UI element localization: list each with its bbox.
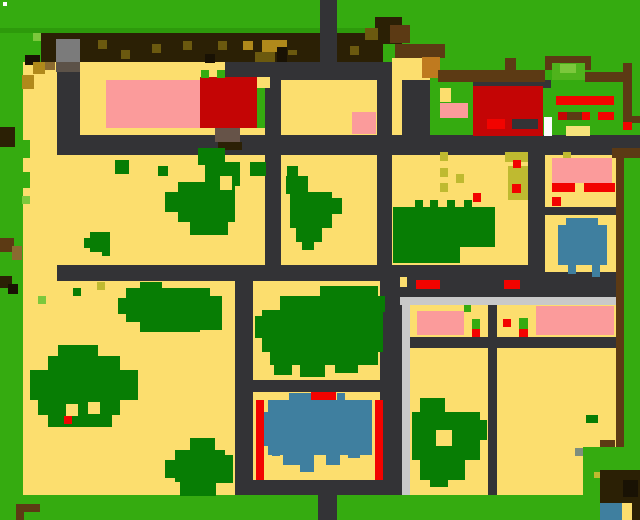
stone-block-base xyxy=(56,62,80,72)
tree xyxy=(30,370,138,400)
gold-speckle xyxy=(152,44,161,53)
green-dot xyxy=(73,288,81,296)
green-dot xyxy=(464,305,471,312)
olive-dot xyxy=(440,152,448,161)
building-red-bar xyxy=(584,183,615,192)
field-notch xyxy=(88,402,100,414)
market-item xyxy=(558,112,567,120)
field-corner xyxy=(622,503,632,520)
tree xyxy=(196,322,222,330)
green-dot xyxy=(217,70,225,78)
building-red-bar xyxy=(552,183,575,192)
lime-pixel xyxy=(33,33,41,41)
tree xyxy=(274,365,292,375)
road-marking-red xyxy=(504,280,520,289)
tree xyxy=(255,316,263,338)
game-map[interactable] xyxy=(0,0,640,520)
red-dot xyxy=(512,184,521,193)
tree xyxy=(126,288,210,322)
tree xyxy=(470,420,487,440)
water-corner xyxy=(600,503,622,520)
tree xyxy=(165,460,177,478)
pond-water xyxy=(337,393,345,401)
pond-water xyxy=(326,455,340,465)
olive-dot xyxy=(456,174,464,183)
fence-corner-southwest xyxy=(16,504,40,512)
building-pink-east xyxy=(552,158,612,183)
lime-pixel xyxy=(22,196,30,204)
dark-speckle xyxy=(277,47,287,63)
pond-water xyxy=(268,400,372,455)
tree xyxy=(430,478,448,487)
dirt-edge-corner xyxy=(632,497,640,520)
road-vertical-west xyxy=(57,72,80,138)
grass-bump xyxy=(22,140,30,158)
fence-post xyxy=(623,63,632,117)
fence-post xyxy=(505,58,516,70)
gold-speckle xyxy=(243,41,253,50)
tree xyxy=(118,298,126,314)
road-main-street xyxy=(57,135,640,155)
tree xyxy=(393,207,495,247)
pond-east-water xyxy=(566,218,598,228)
green-dot xyxy=(586,415,598,423)
dark-speckle xyxy=(205,54,215,63)
green-dot xyxy=(201,70,209,78)
tree xyxy=(302,240,314,250)
lime-pixel xyxy=(38,296,46,304)
red-dot xyxy=(503,319,511,327)
pond-fence-red xyxy=(375,400,383,480)
pond-water xyxy=(264,412,272,446)
tree xyxy=(190,220,228,235)
grass-bump xyxy=(22,172,30,188)
building-door-white xyxy=(544,117,552,136)
pond-water xyxy=(283,455,301,465)
gold-speckle xyxy=(288,50,297,55)
tree xyxy=(420,460,465,480)
sidewalk-vertical xyxy=(402,305,410,495)
road-row xyxy=(410,337,617,348)
field-pixel xyxy=(400,277,407,287)
road-vertical-pond-west xyxy=(235,281,253,495)
gold-speckle xyxy=(98,40,107,49)
fence-piece xyxy=(600,440,615,447)
building-window-dark xyxy=(512,119,538,129)
dirt-cluster xyxy=(12,246,22,260)
road-middle-fareast xyxy=(545,272,617,297)
tree xyxy=(335,365,358,373)
green-dot xyxy=(115,160,129,174)
olive-dot xyxy=(563,152,571,158)
pond-east-water xyxy=(568,263,576,274)
dirt-cluster xyxy=(8,284,18,294)
road-marking-red xyxy=(416,280,440,289)
pond-water xyxy=(289,393,311,401)
roadside-block xyxy=(215,128,240,142)
building-green-strip xyxy=(257,88,265,128)
market-stall-yellow xyxy=(566,126,590,136)
fence-piece xyxy=(395,44,445,58)
sidewalk-horizontal xyxy=(400,297,617,305)
building-red-west xyxy=(200,77,257,128)
olive-dot xyxy=(97,282,105,290)
tree xyxy=(180,480,216,496)
road-yard-divider xyxy=(488,305,497,495)
tree xyxy=(290,192,332,228)
pond-fence-red xyxy=(311,392,336,400)
road-middle xyxy=(57,265,545,281)
pink-patch-center xyxy=(352,112,376,134)
road-vertical-top xyxy=(320,0,337,63)
fence-east-patch xyxy=(612,148,640,158)
dirt-square-west xyxy=(0,127,15,147)
road-pondcell-west xyxy=(528,140,545,272)
tree xyxy=(84,238,92,248)
shop-pink-a xyxy=(417,311,464,335)
sprout-red xyxy=(472,329,480,337)
fence-piece xyxy=(585,72,623,82)
road-plaza xyxy=(402,80,430,155)
fence-corner-southwest xyxy=(16,512,24,520)
dirt-cluster xyxy=(22,75,34,89)
stone-block xyxy=(56,39,80,62)
gold-speckle xyxy=(183,41,192,50)
tree xyxy=(48,413,112,427)
shop-pink-b xyxy=(536,306,614,335)
green-dot xyxy=(287,166,298,178)
white-dot xyxy=(3,2,7,6)
road-stub-south xyxy=(318,495,337,520)
road-vertical-center-left xyxy=(265,63,281,281)
dirt-patch-corner-dark xyxy=(623,480,638,497)
fence-piece xyxy=(438,70,545,82)
field-pixel xyxy=(440,88,451,102)
pink-patch-northwest xyxy=(440,103,468,118)
tree xyxy=(270,352,378,365)
field-notch xyxy=(436,430,452,446)
road-pondcell-north xyxy=(543,207,617,215)
tree xyxy=(90,232,110,252)
tree xyxy=(262,310,383,352)
pond-water xyxy=(300,455,314,472)
market-item xyxy=(582,112,590,120)
road-vertical-pond-east xyxy=(380,281,402,495)
tree xyxy=(140,322,200,332)
pond-east-water xyxy=(558,225,607,265)
gold-speckle xyxy=(218,41,227,50)
lime-patch-light xyxy=(560,64,576,73)
road-vertical-center-right xyxy=(377,63,392,281)
pond-water xyxy=(348,448,360,458)
gold-speckle xyxy=(121,50,130,59)
fence-piece xyxy=(390,25,410,43)
gold-speckle xyxy=(350,46,359,55)
building-pink-west xyxy=(106,80,200,128)
red-dot xyxy=(473,193,481,202)
road-pond-south xyxy=(235,480,402,495)
market-item xyxy=(567,112,582,120)
olive-patch xyxy=(508,166,528,200)
red-dot xyxy=(552,197,561,206)
green-dot xyxy=(250,162,266,176)
tree xyxy=(165,192,180,212)
red-dot xyxy=(64,416,72,424)
field-notch xyxy=(257,77,270,88)
dirt-cluster xyxy=(33,62,45,74)
fence-east-strip xyxy=(616,158,624,447)
gold-speckle xyxy=(365,28,378,40)
dirt-cluster xyxy=(45,62,55,70)
tree xyxy=(393,247,460,263)
building-window-red xyxy=(487,119,505,129)
red-pixel-east xyxy=(623,122,632,130)
sprout-red xyxy=(519,329,528,337)
red-dot xyxy=(513,160,521,168)
pond-east-water xyxy=(592,263,600,277)
sage-pixel xyxy=(575,448,583,456)
olive-dot xyxy=(440,168,448,177)
olive-dot xyxy=(440,183,448,192)
pond-fence-red xyxy=(256,400,264,480)
tree xyxy=(102,250,110,256)
green-dot xyxy=(158,166,168,176)
field-notch xyxy=(220,176,232,190)
tree xyxy=(330,198,342,214)
tree xyxy=(300,365,325,377)
pond-water-dot xyxy=(272,448,280,456)
tree xyxy=(215,455,233,483)
market-awning xyxy=(556,96,614,105)
field-notch xyxy=(66,404,78,416)
market-item xyxy=(598,112,614,120)
